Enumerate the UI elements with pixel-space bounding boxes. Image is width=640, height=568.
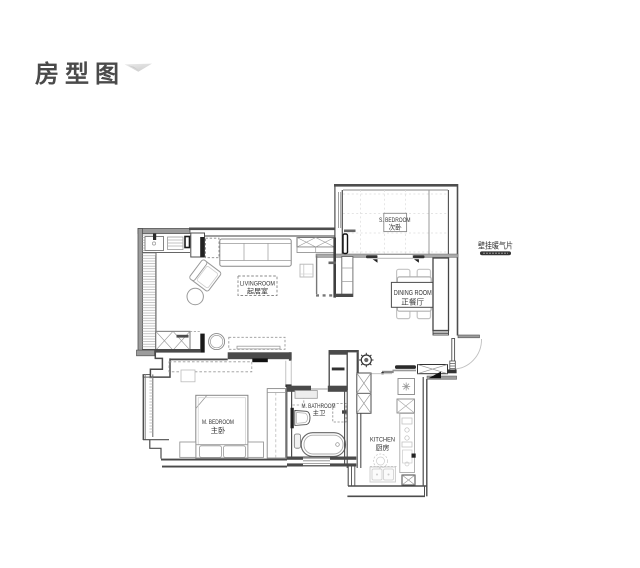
svg-text:厨房: 厨房 <box>376 443 390 452</box>
svg-text:S. BEDROOM: S. BEDROOM <box>379 217 411 224</box>
svg-text:KITCHEN: KITCHEN <box>370 437 395 444</box>
svg-text:LIVINGROOM: LIVINGROOM <box>240 281 275 288</box>
svg-text:M. BEDROOM: M. BEDROOM <box>202 419 234 426</box>
svg-text:DINING ROOM: DINING ROOM <box>394 290 432 297</box>
svg-text:起居室: 起居室 <box>247 287 268 296</box>
svg-text:主卫: 主卫 <box>313 408 326 417</box>
svg-text:壁挂暖气片: 壁挂暖气片 <box>478 241 513 251</box>
svg-text:次卧: 次卧 <box>389 223 403 232</box>
svg-text:正餐厅: 正餐厅 <box>401 298 424 307</box>
svg-text:主卧: 主卧 <box>211 426 226 435</box>
